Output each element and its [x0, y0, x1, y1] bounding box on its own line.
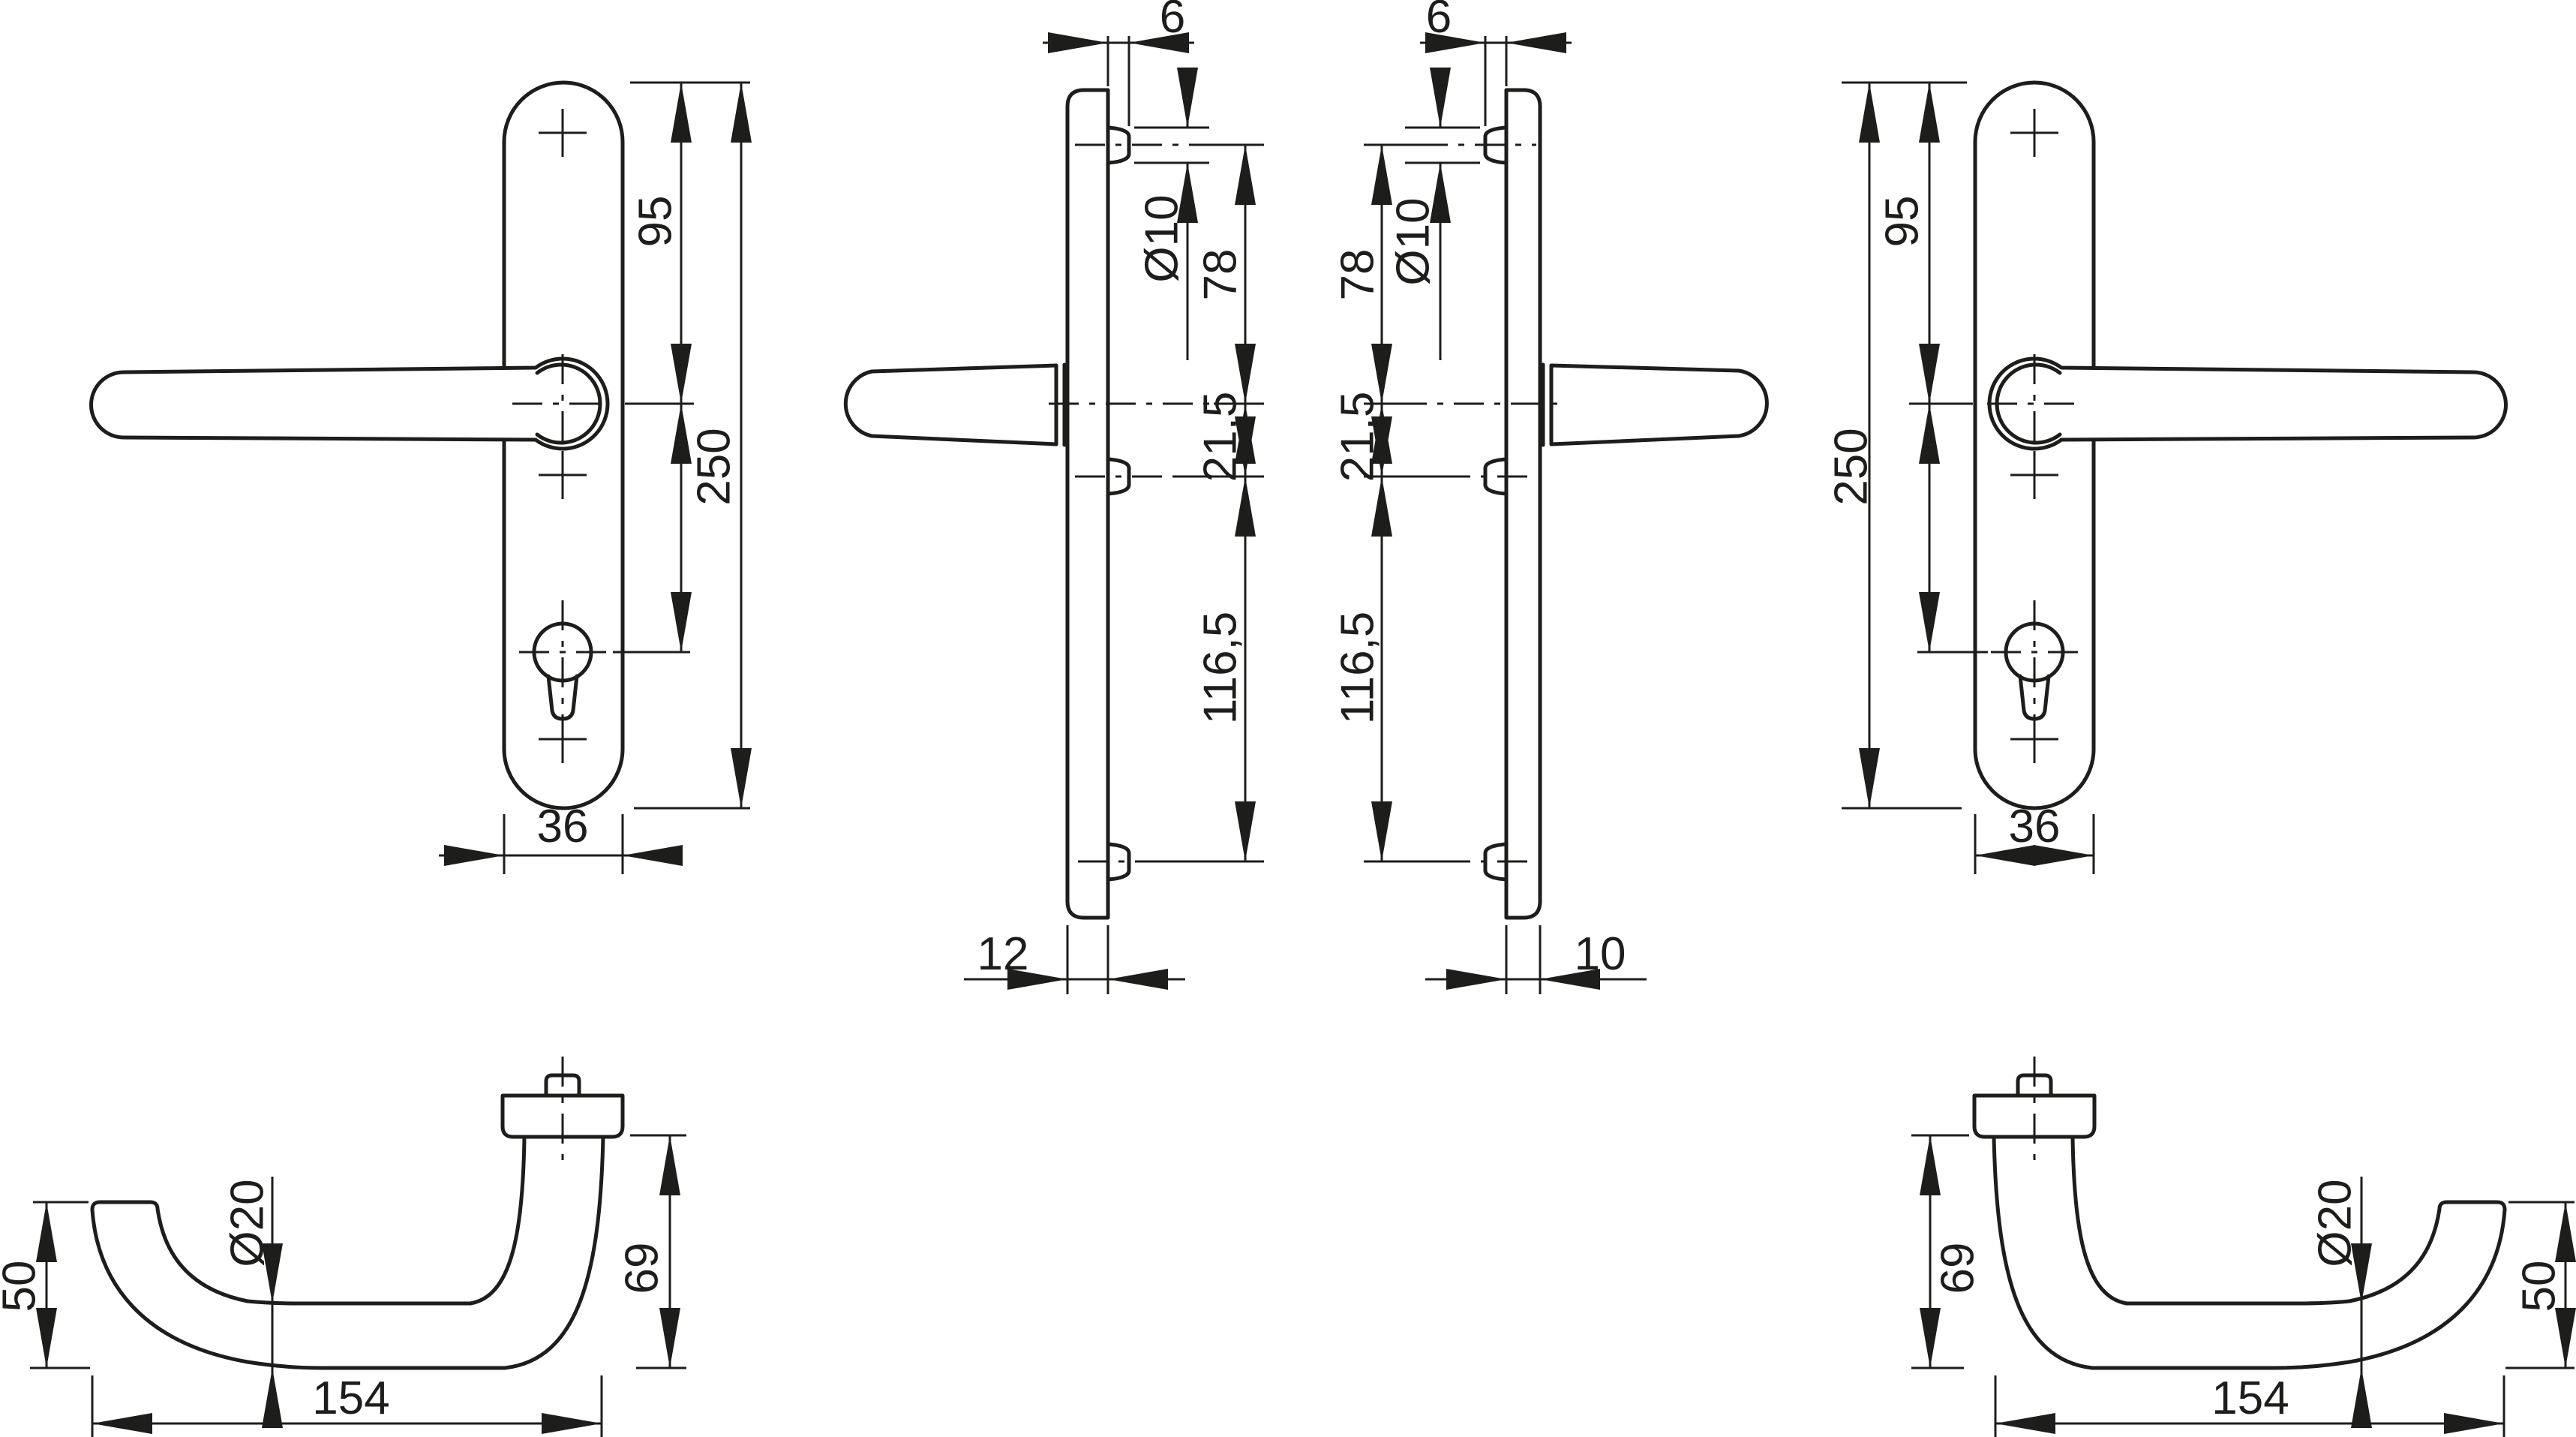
grip-end-cap — [2439, 1202, 2505, 1210]
lever-profile-outline — [1551, 365, 1767, 444]
dim-69-right: 69 — [1932, 1243, 1984, 1294]
screw-hole-cross-top — [2010, 109, 2058, 157]
neck-outer-edge — [505, 1137, 603, 1368]
view-lever-right: 69 Ø20 50 154 — [1911, 1057, 2576, 1437]
screw-hole-cross-middle — [539, 451, 587, 499]
dim-78-right: 78 — [1332, 249, 1384, 301]
dim-dia10-right: Ø10 — [1388, 197, 1440, 285]
view-lever-left: 50 Ø20 69 154 — [0, 1057, 686, 1437]
neck-inner-edge — [470, 1137, 524, 1303]
lever-neck-ring-profile — [1543, 365, 1551, 445]
dim-154-right: 154 — [2211, 1372, 2289, 1424]
dim-6-right: 6 — [1426, 0, 1452, 43]
backplate-profile-outline — [1067, 90, 1108, 918]
dimensions-front-right: 95 250 36 — [1826, 83, 2094, 874]
view-profile-right: 6 Ø10 78 21,5 116,5 — [1332, 0, 1767, 994]
lever-profile-outline — [845, 365, 1056, 444]
view-front-right: 95 250 36 — [1826, 83, 2506, 874]
backplate-profile-outline — [1506, 90, 1540, 918]
dim-250-left: 250 — [689, 428, 740, 505]
dim-12-left: 12 — [977, 928, 1029, 980]
dim-21-5-left: 21,5 — [1195, 392, 1247, 483]
dim-dia20-right: Ø20 — [2310, 1179, 2361, 1267]
dim-116-5-left: 116,5 — [1195, 612, 1247, 725]
dim-dia20-left: Ø20 — [222, 1179, 274, 1267]
dim-250-right: 250 — [1826, 428, 1878, 505]
dim-36-right: 36 — [2009, 801, 2061, 852]
dim-116-5-right: 116,5 — [1332, 612, 1384, 725]
dimensions-profile-right: 6 Ø10 78 21,5 116,5 — [1332, 0, 1647, 994]
grip-outer-edge — [2092, 1210, 2505, 1368]
grip-outer-edge — [92, 1210, 505, 1368]
grip-inner-edge — [2127, 1209, 2439, 1303]
technical-drawing-page: 95 250 36 6 Ø10 — [0, 0, 2576, 1437]
view-profile-left: 6 Ø10 78 21,5 116,5 — [845, 0, 1264, 994]
neck-outer-edge — [1994, 1137, 2092, 1368]
grip-end-cap — [92, 1202, 158, 1210]
dim-21-5-right: 21,5 — [1332, 392, 1384, 483]
dim-69-left: 69 — [617, 1243, 668, 1294]
dim-6-left: 6 — [1160, 0, 1185, 43]
view-front-left: 95 250 36 — [92, 83, 752, 874]
grip-inner-edge — [158, 1209, 470, 1303]
dim-95-right: 95 — [1877, 196, 1929, 248]
dimensions-front-left: 95 250 36 — [439, 83, 752, 874]
technical-drawing-canvas: 95 250 36 6 Ø10 — [0, 0, 2576, 1437]
neck-inner-edge — [2073, 1137, 2127, 1303]
dim-50-left: 50 — [0, 1261, 46, 1312]
dim-dia10-left: Ø10 — [1136, 194, 1188, 282]
dim-10-right: 10 — [1575, 928, 1626, 980]
screw-hole-cross-middle — [2010, 451, 2058, 499]
dim-50-right: 50 — [2514, 1261, 2565, 1312]
dim-36-left: 36 — [537, 801, 589, 852]
dim-95-left: 95 — [630, 196, 682, 248]
screw-hole-cross-top — [539, 109, 587, 157]
dim-78-left: 78 — [1195, 249, 1247, 301]
dim-154-left: 154 — [312, 1372, 389, 1424]
